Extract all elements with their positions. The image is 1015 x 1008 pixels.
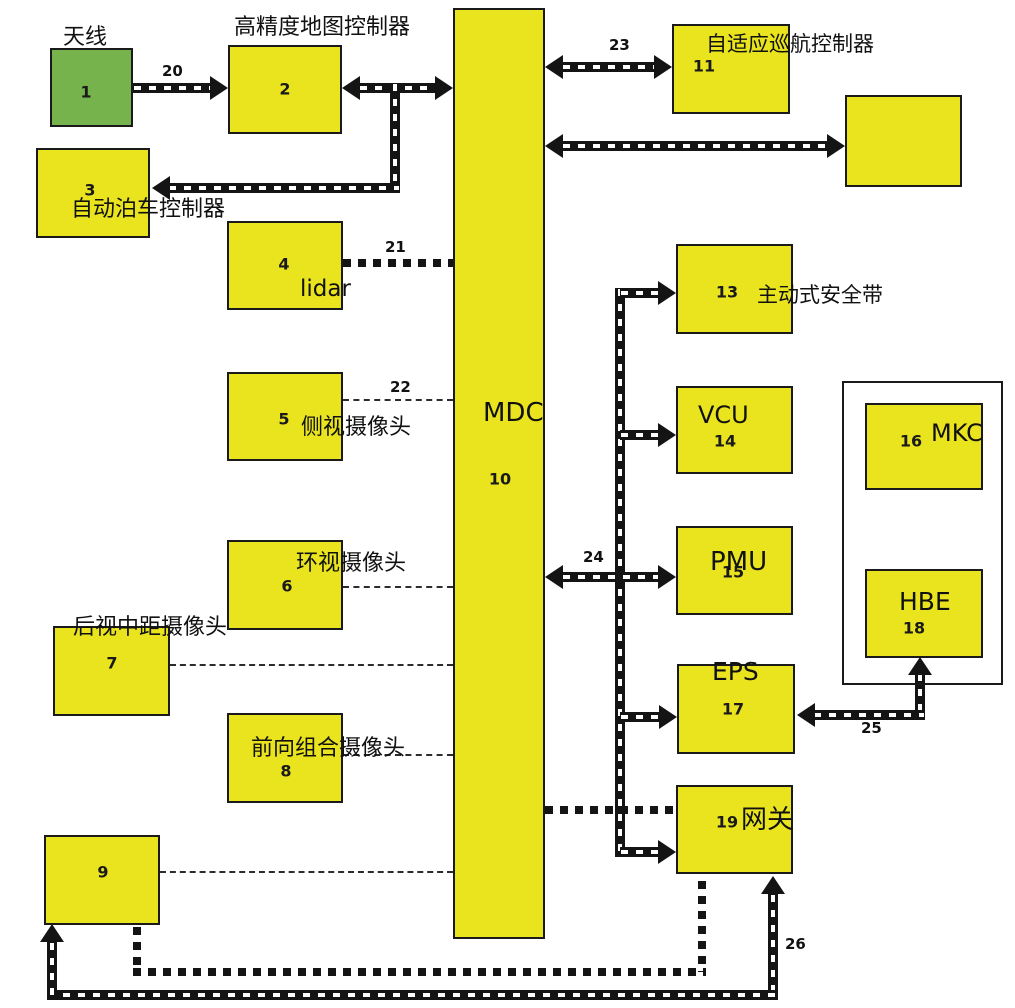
bottom-bus bbox=[47, 990, 778, 1000]
node-number-10: 10 bbox=[489, 470, 511, 489]
arrowhead-14-right bbox=[658, 423, 676, 447]
node-number-11: 11 bbox=[693, 57, 715, 76]
edge-branch-3-h bbox=[168, 183, 400, 193]
node-number-19: 19 bbox=[716, 813, 738, 832]
node-number-6: 6 bbox=[281, 577, 292, 596]
edge-21 bbox=[343, 259, 453, 267]
branch-14 bbox=[620, 430, 660, 440]
arrowhead-12-right bbox=[827, 134, 845, 158]
edge-label-21: 21 bbox=[385, 240, 406, 256]
label-eps: EPS bbox=[712, 659, 759, 685]
arrowhead-24-left bbox=[545, 565, 563, 589]
node-number-5: 5 bbox=[278, 410, 289, 429]
branch-17 bbox=[620, 712, 661, 722]
edge-label-20: 20 bbox=[162, 64, 183, 80]
node-number-4: 4 bbox=[278, 255, 289, 274]
label-hbe: HBE bbox=[899, 589, 951, 615]
label-vcu: VCU bbox=[698, 403, 749, 428]
edge-label-22: 22 bbox=[390, 380, 411, 396]
edge-24 bbox=[562, 572, 660, 582]
node-number-9: 9 bbox=[97, 863, 108, 882]
edge-9-19-v2 bbox=[698, 881, 706, 972]
arrowhead-12-left bbox=[545, 134, 563, 158]
arrowhead-23-left bbox=[545, 55, 563, 79]
label-antenna: 天线 bbox=[63, 26, 107, 49]
label-gateway: 网关 bbox=[741, 807, 793, 834]
label-surround-camera: 环视摄像头 bbox=[296, 552, 406, 575]
edge-label-26: 26 bbox=[785, 937, 806, 953]
arrowhead-19-right bbox=[658, 840, 676, 864]
node-box-12 bbox=[845, 95, 962, 187]
label-acc-controller: 自适应巡航控制器 bbox=[706, 33, 874, 55]
edge-9-19-v1 bbox=[133, 927, 141, 972]
edge-mdc-12 bbox=[562, 141, 829, 151]
node-number-7: 7 bbox=[106, 654, 117, 673]
label-lidar: lidar bbox=[300, 277, 351, 301]
edge-mdc-19-dot bbox=[545, 806, 676, 814]
edge-20 bbox=[133, 83, 211, 93]
arrowhead-20-right bbox=[210, 76, 228, 100]
label-mkc: MKC bbox=[931, 421, 983, 446]
edge-6-dash bbox=[343, 586, 453, 588]
edge-9-19-h bbox=[133, 968, 706, 976]
label-mdc: MDC bbox=[483, 400, 544, 427]
label-pmu: PMU bbox=[710, 549, 767, 576]
arrowhead-2-left bbox=[342, 76, 360, 100]
arrowhead-23-right bbox=[654, 55, 672, 79]
edge-22 bbox=[343, 399, 453, 401]
label-auto-parking-controller: 自动泊车控制器 bbox=[71, 198, 225, 221]
node-vcu bbox=[676, 386, 793, 474]
label-rear-mid-camera: 后视中距摄像头 bbox=[73, 616, 227, 639]
edge-label-24: 24 bbox=[583, 550, 604, 566]
node-number-2: 2 bbox=[279, 80, 290, 99]
arrowhead-24-right bbox=[658, 565, 676, 589]
edge-branch-3-v bbox=[390, 83, 400, 193]
arrowhead-mdc-right bbox=[435, 76, 453, 100]
node-number-1: 1 bbox=[80, 83, 91, 102]
arrowhead-26-up bbox=[761, 876, 785, 894]
edge-label-23: 23 bbox=[609, 38, 630, 54]
label-side-camera: 侧视摄像头 bbox=[301, 416, 411, 439]
branch-13 bbox=[620, 288, 660, 298]
arrowhead-25-left bbox=[797, 703, 815, 727]
edge-9-dash bbox=[160, 871, 453, 873]
arrowhead-13-right bbox=[658, 281, 676, 305]
edge-7-dash bbox=[170, 664, 453, 666]
node-number-13: 13 bbox=[716, 283, 738, 302]
arrowhead-17-right bbox=[659, 705, 677, 729]
label-hd-map-controller: 高精度地图控制器 bbox=[234, 16, 410, 39]
edge-label-25: 25 bbox=[861, 721, 882, 737]
edge-26 bbox=[768, 894, 778, 1000]
edge-9-up bbox=[47, 942, 57, 1000]
arrowhead-9-up bbox=[40, 924, 64, 942]
node-number-14: 14 bbox=[714, 432, 736, 451]
node-number-17: 17 bbox=[722, 700, 744, 719]
arrowhead-3-left bbox=[152, 176, 170, 200]
branch-19 bbox=[620, 847, 660, 857]
label-active-seatbelt: 主动式安全带 bbox=[757, 284, 883, 306]
edge-23 bbox=[562, 62, 656, 72]
arrowhead-25-up bbox=[908, 657, 932, 675]
label-front-combo-camera: 前向组合摄像头 bbox=[251, 737, 405, 760]
diagram-stage: 123456789101113141516171819天线高精度地图控制器自动泊… bbox=[0, 0, 1015, 1008]
node-number-8: 8 bbox=[280, 762, 291, 781]
